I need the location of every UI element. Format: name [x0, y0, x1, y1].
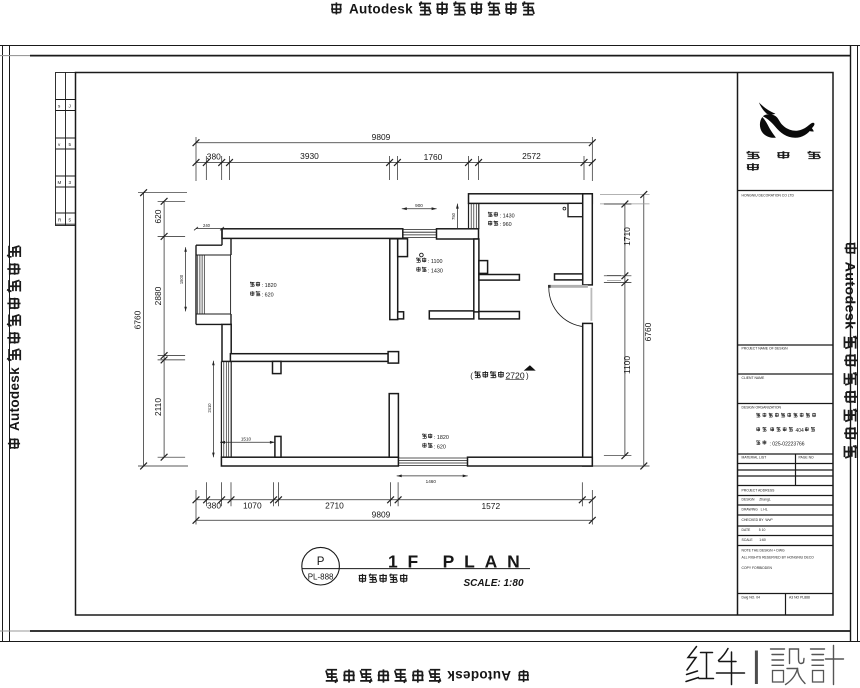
svg-text:1510: 1510	[241, 437, 252, 442]
svg-text:750: 750	[451, 212, 456, 220]
svg-text:9809: 9809	[372, 132, 391, 142]
svg-text:J: J	[69, 104, 71, 109]
svg-text:: 1820: : 1820	[262, 283, 277, 289]
svg-text:2720: 2720	[506, 371, 525, 381]
svg-text:DESIGN ZhangL: DESIGN ZhangL	[742, 498, 771, 502]
svg-text:6760: 6760	[133, 310, 143, 329]
svg-text:(: (	[470, 372, 473, 381]
svg-text:404: 404	[796, 428, 805, 434]
svg-text:2710: 2710	[325, 500, 344, 510]
svg-text:2572: 2572	[522, 151, 541, 161]
svg-text:ALL RIGHTS RESERVED BY HONGNIU: ALL RIGHTS RESERVED BY HONGNIU DECO	[742, 556, 815, 560]
svg-text:5: 5	[69, 142, 72, 147]
svg-text:NOTE THE DESIGN + DWG: NOTE THE DESIGN + DWG	[742, 549, 786, 553]
svg-text:DRAWING L HL: DRAWING L HL	[742, 508, 768, 512]
svg-text:1500: 1500	[179, 274, 184, 284]
svg-text:2110: 2110	[153, 398, 163, 416]
svg-text:1760: 1760	[424, 152, 443, 162]
svg-text:: 620: : 620	[434, 444, 446, 450]
svg-text:620: 620	[153, 209, 163, 223]
svg-text:1710: 1710	[622, 227, 632, 246]
svg-text:CLIENT NAME: CLIENT NAME	[742, 376, 765, 380]
svg-text:P: P	[317, 556, 325, 568]
svg-text:1460: 1460	[426, 479, 437, 484]
svg-text:PROJECT NAME OF DESIGN: PROJECT NAME OF DESIGN	[742, 347, 789, 351]
svg-text:1070: 1070	[243, 501, 262, 511]
svg-text:: 1430: : 1430	[500, 213, 515, 219]
svg-text:DATE 5 10: DATE 5 10	[742, 528, 766, 532]
svg-text:: 960: : 960	[500, 222, 512, 228]
svg-text:A3 NO PL888: A3 NO PL888	[789, 596, 810, 600]
svg-text:: 1820: : 1820	[434, 435, 449, 441]
svg-text:3: 3	[69, 180, 72, 185]
svg-text:: 1100: : 1100	[428, 259, 443, 265]
svg-text:PAGE NO: PAGE NO	[799, 456, 815, 460]
svg-text:DESIGN ORGANIZATION: DESIGN ORGANIZATION	[742, 406, 782, 410]
svg-text:6760: 6760	[643, 322, 653, 341]
svg-text:900: 900	[415, 203, 423, 208]
svg-text:1F PLAN: 1F PLAN	[388, 552, 530, 572]
svg-text:Dwg NO. 04: Dwg NO. 04	[742, 596, 761, 600]
svg-text:1100: 1100	[622, 356, 632, 374]
svg-text:HONGNIU DECORATION CO LTD: HONGNIU DECORATION CO LTD	[742, 194, 795, 198]
svg-text:PROJECT ADDRESS: PROJECT ADDRESS	[742, 489, 776, 493]
svg-text:SCALE: 1:80: SCALE: 1:80	[464, 578, 524, 589]
svg-text:SCALE 1:60: SCALE 1:60	[742, 538, 766, 542]
svg-text:: 1430: : 1430	[428, 268, 443, 274]
svg-text:1572: 1572	[481, 501, 500, 511]
svg-text:2410: 2410	[207, 403, 212, 413]
svg-text:3930: 3930	[300, 151, 319, 161]
svg-text:380: 380	[207, 500, 221, 510]
svg-text:240: 240	[203, 223, 211, 228]
svg-text:): )	[526, 372, 529, 381]
svg-text:: 620: : 620	[262, 293, 274, 299]
svg-text:MATERIAL LIST: MATERIAL LIST	[742, 456, 767, 460]
svg-text:CHECKED BY WvP: CHECKED BY WvP	[742, 518, 774, 522]
svg-text:9809: 9809	[372, 509, 391, 519]
svg-text:: 025-02223766: : 025-02223766	[770, 441, 805, 447]
svg-text:COPY FORBIDDEN: COPY FORBIDDEN	[742, 566, 773, 570]
svg-text:5: 5	[69, 218, 72, 223]
svg-text:M: M	[58, 180, 62, 185]
svg-text:2880: 2880	[153, 286, 163, 305]
svg-text:380: 380	[207, 152, 221, 162]
svg-text:PL-888: PL-888	[308, 572, 334, 581]
